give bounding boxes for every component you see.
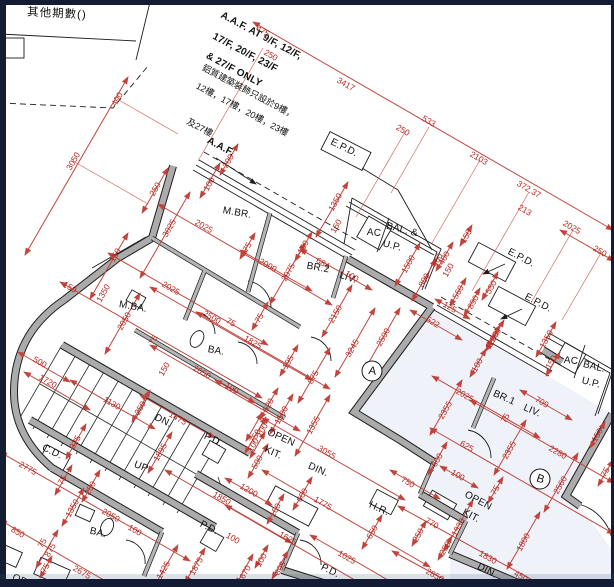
room-ac-a: AC	[366, 227, 381, 239]
unit-b-badge: B	[530, 469, 551, 490]
unit-a-badge: A	[362, 361, 383, 382]
frame-bottom	[0, 579, 614, 587]
unit-letter: B	[534, 472, 545, 486]
floor-plan-sheet: 其他期數()A.A.F. AT 9/F, 12/F,17/F, 20/F, 23…	[0, 0, 614, 587]
frame-left	[0, 0, 6, 587]
unit-letter: A	[367, 365, 376, 378]
floor-plan-canvas	[0, 0, 614, 587]
other-phases-title: 其他期數()	[27, 3, 87, 22]
frame-top	[0, 0, 614, 5]
room-ac-b: AC	[563, 355, 578, 367]
